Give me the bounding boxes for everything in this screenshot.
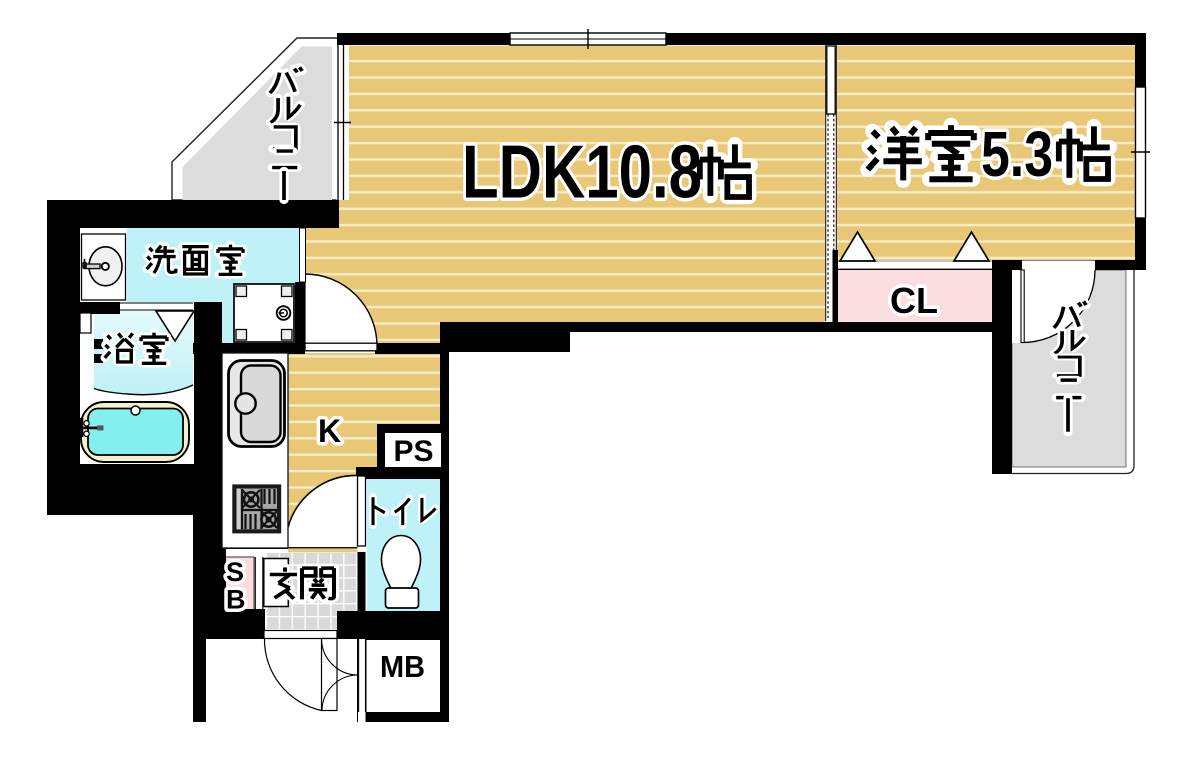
svg-text:K: K [318, 413, 341, 449]
svg-text:5.3: 5.3 [981, 118, 1053, 190]
svg-text:MB: MB [380, 649, 425, 684]
svg-text:B: B [226, 585, 246, 615]
svg-text:PS: PS [394, 435, 434, 468]
svg-text:CL: CL [890, 280, 938, 321]
svg-text:LDK10.8: LDK10.8 [462, 130, 702, 214]
svg-text:S: S [226, 557, 244, 587]
